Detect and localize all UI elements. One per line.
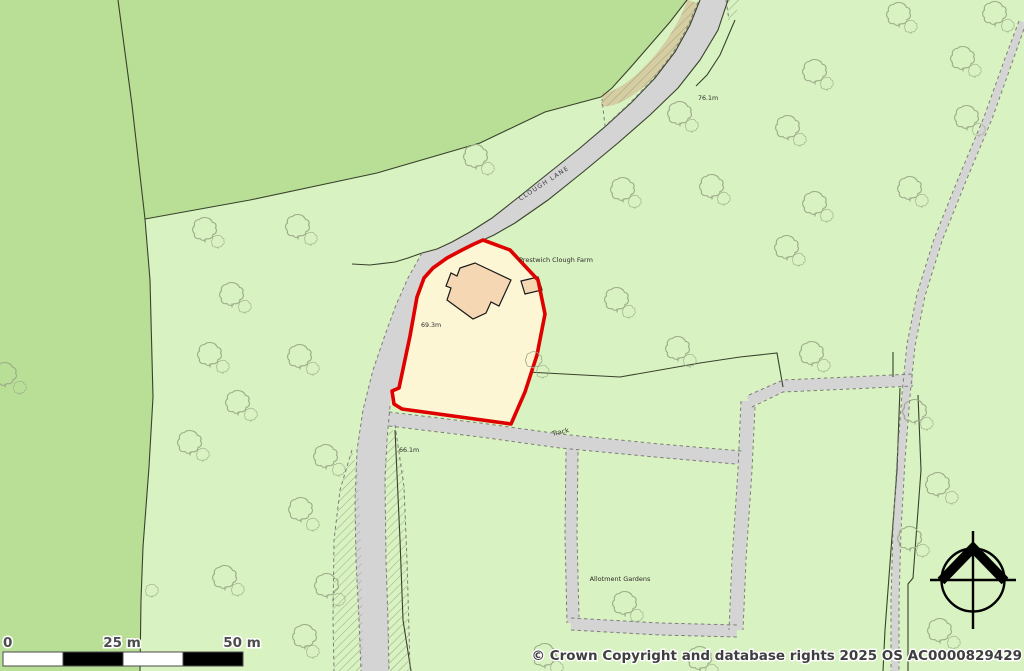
spot-height-76: 76.1m bbox=[698, 95, 718, 102]
scale-0: 0 bbox=[3, 635, 12, 651]
map-canvas: CLOUGH LANE Prestwich Clough Farm 76.1m … bbox=[0, 0, 1024, 671]
scale-50: 50 m bbox=[223, 635, 261, 651]
allotment-gardens-label: Allotment Gardens bbox=[590, 575, 651, 583]
scale-25: 25 m bbox=[103, 635, 141, 651]
os-map: CLOUGH LANE Prestwich Clough Farm 76.1m … bbox=[0, 0, 1024, 671]
spot-height-69: 69.3m bbox=[421, 322, 441, 329]
copyright-notice: © Crown Copyright and database rights 20… bbox=[532, 648, 1022, 664]
farm-label: Prestwich Clough Farm bbox=[519, 256, 593, 264]
spot-height-66: 66.1m bbox=[399, 447, 419, 454]
